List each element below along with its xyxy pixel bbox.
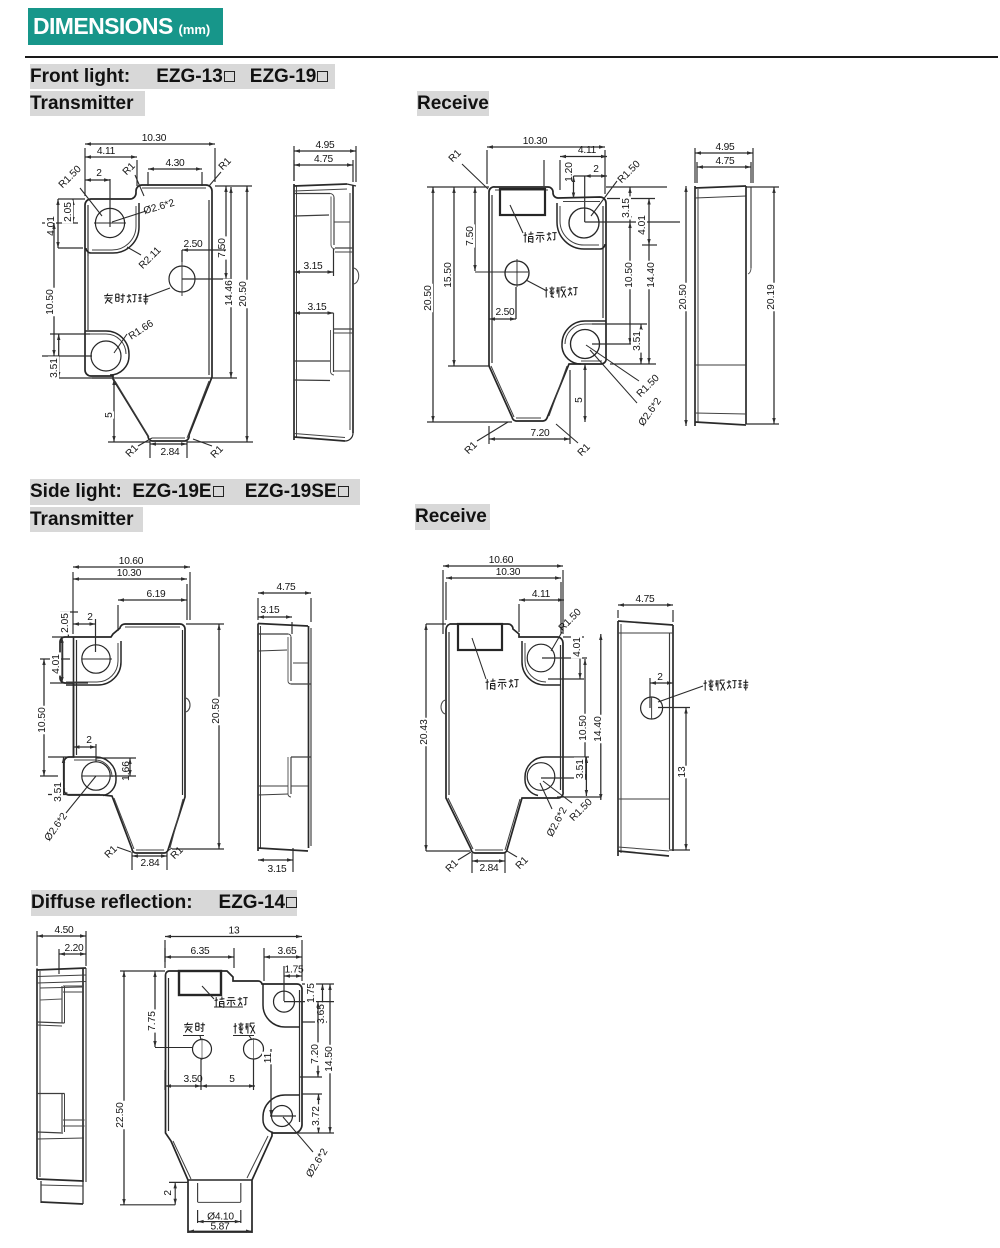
svg-text:7.75: 7.75 xyxy=(147,1011,158,1031)
svg-text:20.50: 20.50 xyxy=(211,698,222,724)
svg-text:10.50: 10.50 xyxy=(578,715,589,741)
svg-text:R1: R1 xyxy=(217,156,234,173)
svg-text:3.15: 3.15 xyxy=(267,864,287,875)
svg-text:R1: R1 xyxy=(169,845,186,862)
svg-text:R1: R1 xyxy=(103,844,120,861)
svg-text:13: 13 xyxy=(677,766,688,778)
svg-text:1.66: 1.66 xyxy=(121,761,132,781)
svg-text:3.15: 3.15 xyxy=(307,302,327,313)
svg-text:2.84: 2.84 xyxy=(160,447,180,458)
svg-text:22.50: 22.50 xyxy=(115,1102,126,1128)
svg-text:3.51: 3.51 xyxy=(632,331,643,351)
svg-text:10.50: 10.50 xyxy=(37,707,48,733)
svg-text:R1.50: R1.50 xyxy=(568,797,595,824)
svg-text:2.20: 2.20 xyxy=(64,943,84,954)
svg-text:Ø2.6*2: Ø2.6*2 xyxy=(43,811,70,844)
svg-text:1.75: 1.75 xyxy=(306,983,317,1003)
svg-text:10.30: 10.30 xyxy=(142,133,167,144)
svg-text:10.60: 10.60 xyxy=(489,555,514,566)
svg-text:10.30: 10.30 xyxy=(117,568,142,579)
svg-text:2.05: 2.05 xyxy=(60,613,71,633)
svg-text:1.75: 1.75 xyxy=(284,965,304,976)
svg-text:1.20: 1.20 xyxy=(564,162,575,182)
svg-text:10.60: 10.60 xyxy=(119,556,144,567)
svg-text:R1.50: R1.50 xyxy=(635,373,662,400)
svg-text:R1: R1 xyxy=(576,442,593,459)
svg-text:2: 2 xyxy=(593,164,599,175)
svg-text:4.11: 4.11 xyxy=(532,589,551,600)
svg-text:3.15: 3.15 xyxy=(621,198,632,218)
svg-text:20.43: 20.43 xyxy=(419,719,430,745)
svg-text:2: 2 xyxy=(96,168,102,179)
svg-text:Ø2.6*2: Ø2.6*2 xyxy=(545,805,570,838)
svg-text:4.30: 4.30 xyxy=(165,158,185,169)
svg-text:4.95: 4.95 xyxy=(715,142,735,153)
svg-text:6.19: 6.19 xyxy=(146,589,166,600)
svg-text:2.84: 2.84 xyxy=(479,863,499,874)
svg-text:4.75: 4.75 xyxy=(715,156,735,167)
svg-text:2: 2 xyxy=(86,735,92,746)
svg-text:2.84: 2.84 xyxy=(140,858,160,869)
svg-text:14.50: 14.50 xyxy=(324,1046,335,1072)
svg-text:2.50: 2.50 xyxy=(183,239,203,250)
svg-text:R1: R1 xyxy=(463,440,480,457)
svg-text:2.50: 2.50 xyxy=(495,307,515,318)
svg-text:3.15: 3.15 xyxy=(303,261,323,272)
svg-text:7.20: 7.20 xyxy=(310,1044,321,1064)
svg-text:5: 5 xyxy=(104,412,115,418)
svg-text:4.01: 4.01 xyxy=(572,637,583,657)
svg-text:10.50: 10.50 xyxy=(624,262,635,288)
svg-text:4.11: 4.11 xyxy=(578,145,597,156)
svg-text:R1.66: R1.66 xyxy=(127,318,156,342)
svg-text:2: 2 xyxy=(657,672,663,683)
svg-text:Ø2.6*2: Ø2.6*2 xyxy=(637,396,664,429)
svg-text:13: 13 xyxy=(229,926,240,937)
svg-text:R2.11: R2.11 xyxy=(137,245,164,272)
svg-text:7.20: 7.20 xyxy=(530,428,550,439)
svg-text:2: 2 xyxy=(87,612,93,623)
svg-text:3.50: 3.50 xyxy=(183,1074,203,1085)
svg-text:4.75: 4.75 xyxy=(635,594,655,605)
svg-text:R1.50: R1.50 xyxy=(57,164,84,191)
svg-text:6.35: 6.35 xyxy=(190,946,210,957)
svg-text:20.50: 20.50 xyxy=(423,285,434,311)
svg-text:5.87: 5.87 xyxy=(210,1222,230,1233)
svg-text:4.01: 4.01 xyxy=(637,215,648,235)
svg-text:4.75: 4.75 xyxy=(314,154,334,165)
svg-text:R1: R1 xyxy=(447,148,464,165)
svg-text:5: 5 xyxy=(574,397,585,403)
svg-text:20.50: 20.50 xyxy=(238,281,249,307)
svg-text:4.01: 4.01 xyxy=(46,216,57,236)
svg-text:3.51: 3.51 xyxy=(575,759,586,779)
svg-text:14.40: 14.40 xyxy=(646,262,657,288)
svg-text:4.50: 4.50 xyxy=(54,925,74,936)
svg-text:11: 11 xyxy=(263,1052,274,1063)
svg-text:14.40: 14.40 xyxy=(593,716,604,742)
svg-text:3.65: 3.65 xyxy=(277,946,297,957)
svg-text:10.50: 10.50 xyxy=(45,289,56,315)
svg-text:4.95: 4.95 xyxy=(315,140,335,151)
svg-text:10.30: 10.30 xyxy=(496,567,521,578)
svg-text:2.05: 2.05 xyxy=(63,202,74,222)
svg-text:3.51: 3.51 xyxy=(49,358,60,378)
svg-text:7.50: 7.50 xyxy=(217,238,228,258)
svg-text:15.50: 15.50 xyxy=(443,262,454,288)
svg-text:4.75: 4.75 xyxy=(276,582,296,593)
svg-text:Ø2.6*2: Ø2.6*2 xyxy=(142,198,176,217)
svg-text:20.50: 20.50 xyxy=(678,284,689,310)
svg-text:3.51: 3.51 xyxy=(53,782,64,802)
svg-text:4.11: 4.11 xyxy=(97,146,116,157)
svg-text:2: 2 xyxy=(163,1190,174,1196)
svg-text:4.01: 4.01 xyxy=(51,654,62,674)
svg-text:5: 5 xyxy=(229,1074,235,1085)
svg-text:3.72: 3.72 xyxy=(311,1106,322,1126)
svg-text:14.46: 14.46 xyxy=(224,280,235,306)
svg-text:R1: R1 xyxy=(124,443,141,460)
svg-text:7.50: 7.50 xyxy=(465,226,476,246)
svg-text:20.19: 20.19 xyxy=(766,284,777,310)
svg-text:R1.50: R1.50 xyxy=(616,159,643,186)
svg-text:10.30: 10.30 xyxy=(523,136,548,147)
svg-text:Ø2.6*2: Ø2.6*2 xyxy=(304,1147,330,1180)
svg-text:3.15: 3.15 xyxy=(260,605,280,616)
